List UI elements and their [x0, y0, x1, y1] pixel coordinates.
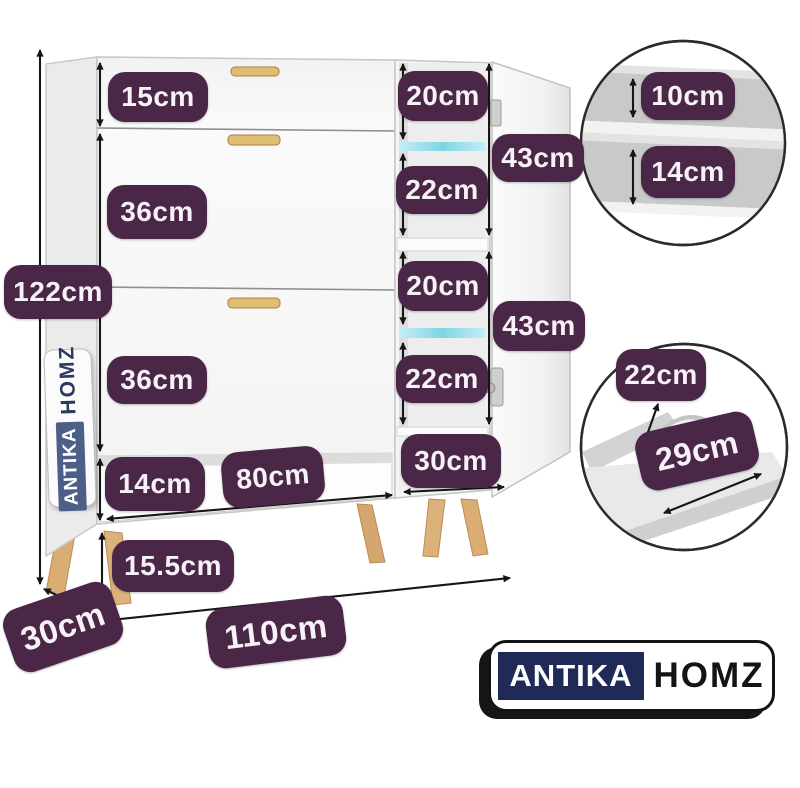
- dimension-badge-cubby2-lower: 22cm: [396, 355, 488, 403]
- dimension-badge-inset-drawer-height: 22cm: [616, 349, 706, 401]
- dimension-badge-top-drawer-height: 15cm: [108, 72, 208, 122]
- dimension-badge-total-height: 122cm: [4, 265, 112, 319]
- dimension-badge-cubby-group1-total: 43cm: [492, 134, 584, 182]
- side-brand-label: ANTIKA HOMZ: [43, 348, 96, 508]
- dimension-badge-leg-height: 15.5cm: [112, 540, 234, 592]
- product-dimension-image: 15cm 36cm 122cm 36cm 14cm 80cm 15.5cm 30…: [0, 0, 800, 788]
- cabinet-door: [485, 62, 570, 497]
- brand-logo-antika: ANTIKA: [498, 652, 643, 700]
- side-brand-homz: HOMZ: [55, 344, 81, 415]
- dimension-badge-cubby-group2-total: 43cm: [493, 301, 585, 351]
- dimension-badge-inset-shelf-gap-upper: 10cm: [641, 72, 735, 120]
- brand-logo-homz: HOMZ: [654, 656, 765, 696]
- side-brand-antika: ANTIKA: [56, 421, 87, 512]
- dimension-badge-cubby2-upper: 20cm: [398, 261, 488, 311]
- dimension-badge-drawer2-height: 36cm: [107, 185, 207, 239]
- dimension-badge-open-shelf-height: 14cm: [105, 457, 205, 511]
- dimension-badge-cubby1-upper: 20cm: [398, 71, 488, 121]
- dimension-badge-cubby1-lower: 22cm: [396, 166, 488, 214]
- dimension-badge-open-shelf-width: 80cm: [220, 445, 326, 510]
- brand-logo: ANTIKA HOMZ: [488, 640, 775, 712]
- dimension-badge-drawer3-height: 36cm: [107, 356, 207, 404]
- dimension-badge-inset-shelf-gap-lower: 14cm: [641, 146, 735, 198]
- dimension-badge-side-column-width: 30cm: [401, 434, 501, 488]
